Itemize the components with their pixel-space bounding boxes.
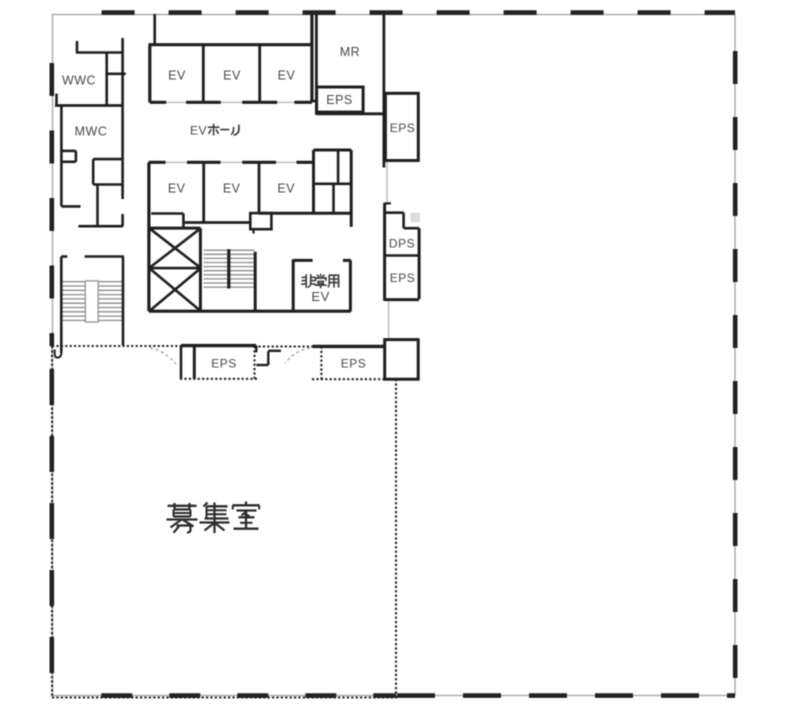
svg-text:EV: EV (278, 69, 296, 83)
svg-text:EV: EV (190, 124, 207, 138)
svg-text:EPS: EPS (341, 357, 367, 371)
svg-text:EV: EV (223, 182, 241, 196)
svg-text:EPS: EPS (390, 121, 416, 135)
svg-text:MR: MR (340, 45, 360, 59)
svg-text:EV: EV (223, 69, 241, 83)
svg-text:EPS: EPS (211, 357, 237, 371)
svg-text:DPS: DPS (389, 237, 415, 251)
svg-text:EV: EV (277, 182, 295, 196)
svg-text:EV: EV (311, 289, 329, 304)
svg-text:EV: EV (168, 182, 186, 196)
svg-text:EPS: EPS (390, 271, 416, 285)
svg-text:EV: EV (168, 69, 186, 83)
svg-text:MWC: MWC (75, 125, 108, 139)
svg-text:WWC: WWC (62, 74, 96, 88)
svg-text:EPS: EPS (326, 93, 353, 107)
